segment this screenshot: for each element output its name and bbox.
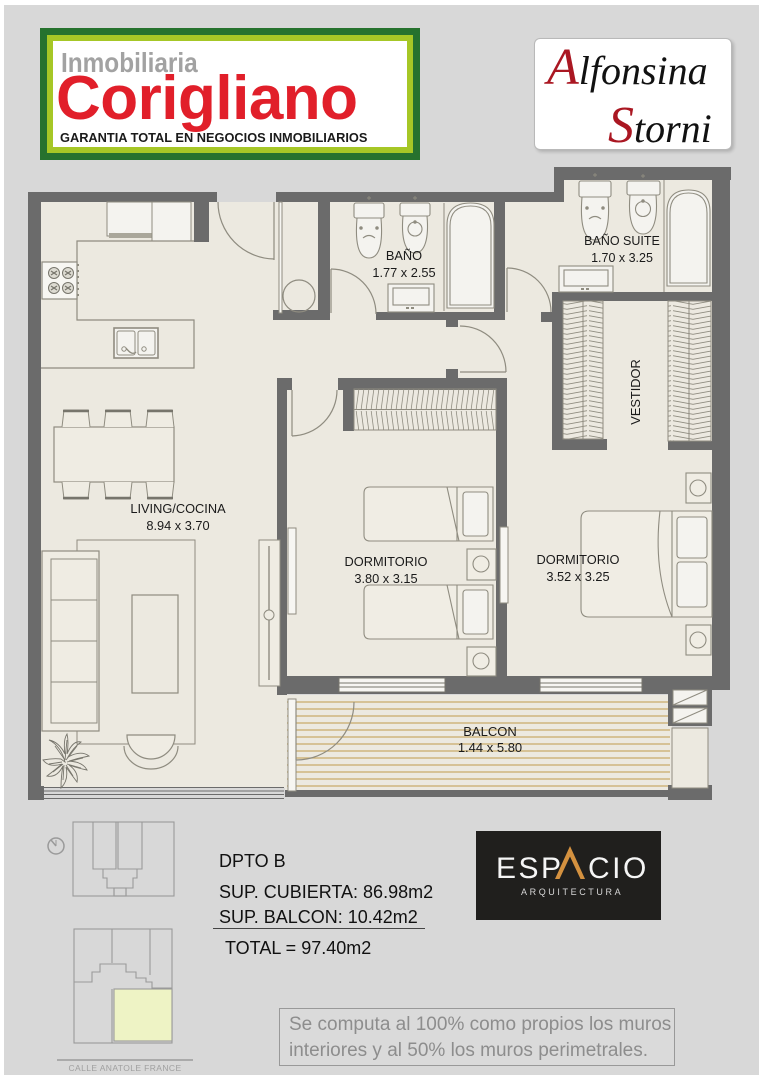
svg-text:CIO: CIO	[588, 852, 649, 885]
svg-text:VESTIDOR: VESTIDOR	[628, 359, 643, 424]
svg-text:3.80 x 3.15: 3.80 x 3.15	[354, 571, 417, 586]
svg-text:DORMITORIO: DORMITORIO	[537, 552, 620, 567]
svg-text:1.77 x 2.55: 1.77 x 2.55	[372, 265, 435, 280]
svg-text:DORMITORIO: DORMITORIO	[345, 554, 428, 569]
svg-text:BAÑO SUITE: BAÑO SUITE	[584, 234, 660, 248]
svg-text:BALCON: BALCON	[463, 724, 516, 739]
svg-text:3.52 x 3.25: 3.52 x 3.25	[546, 569, 609, 584]
svg-text:8.94 x 3.70: 8.94 x 3.70	[146, 518, 209, 533]
svg-text:BAÑO: BAÑO	[386, 248, 422, 263]
svg-text:LIVING/COCINA: LIVING/COCINA	[130, 501, 226, 516]
svg-text:ESP: ESP	[496, 852, 564, 885]
svg-text:1.70 x 3.25: 1.70 x 3.25	[591, 251, 653, 265]
svg-text:1.44 x 5.80: 1.44 x 5.80	[458, 740, 522, 755]
svg-text:ARQUITECTURA: ARQUITECTURA	[521, 887, 623, 897]
svg-text:CALLE ANATOLE FRANCE: CALLE ANATOLE FRANCE	[68, 1063, 181, 1073]
